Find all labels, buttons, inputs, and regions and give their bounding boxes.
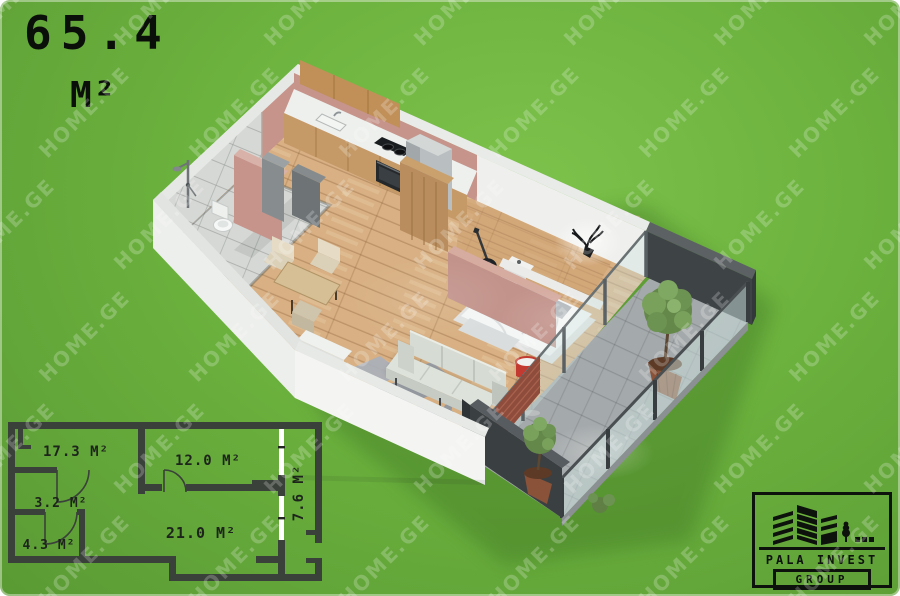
room-label-4-3: 4.3 M² (23, 538, 76, 553)
total-area-value: 65.4 (24, 10, 171, 56)
logo-tree-icon (842, 522, 850, 542)
logo-company-name: PALA INVEST (759, 547, 885, 569)
room-label-21-0: 21.0 M² (166, 524, 236, 542)
total-area-unit: M² (70, 78, 171, 114)
floor-plan-image: 65.4 M² (0, 0, 900, 596)
room-label-3-2: 3.2 M² (35, 496, 88, 511)
room-label-12-0: 12.0 M² (175, 453, 241, 469)
logo-buildings-icon (759, 497, 885, 547)
room-label-17-3: 17.3 M² (43, 444, 109, 460)
company-logo: PALA INVEST GROUP (752, 492, 892, 588)
room-label-7-6: 7.6 M² (291, 465, 307, 522)
total-area-label: 65.4 M² (24, 10, 171, 114)
logo-company-group: GROUP (773, 569, 871, 590)
floor-plan-2d-schematic: 17.3 M² 12.0 M² 3.2 M² 4.3 M² 21.0 M² 7.… (4, 418, 334, 594)
